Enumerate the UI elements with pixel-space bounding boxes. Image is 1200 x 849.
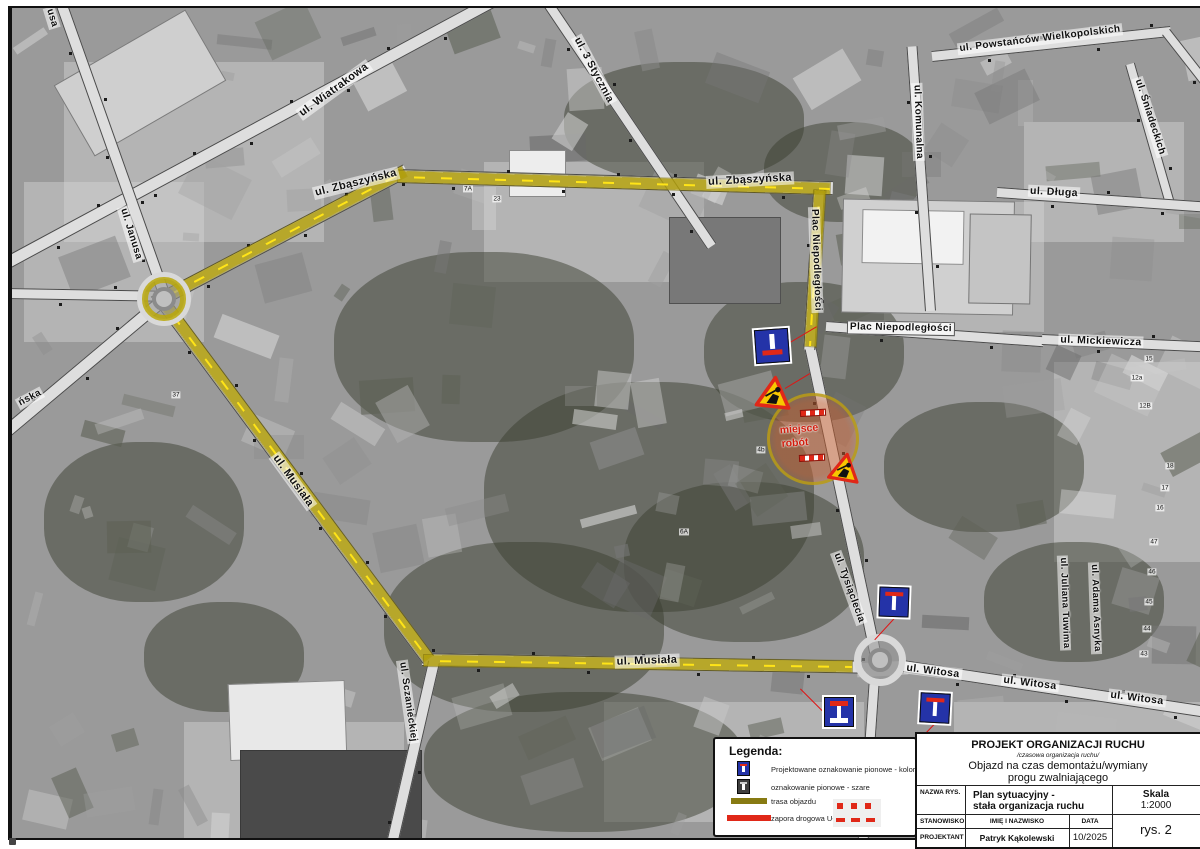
road-point — [690, 230, 693, 233]
road-barrier — [800, 409, 826, 417]
road-point — [193, 152, 196, 155]
road-point — [507, 170, 510, 173]
street-label: ul. Musiała — [269, 451, 317, 511]
building-block — [83, 786, 135, 818]
road-point — [697, 673, 700, 676]
road-point — [418, 771, 421, 774]
road-point — [444, 37, 447, 40]
legend-title: Legenda: — [729, 744, 782, 758]
data-label: DATA — [1081, 818, 1098, 825]
building-block — [862, 209, 965, 265]
legend-item-label: trasa objazdu — [771, 797, 816, 806]
road-point — [1137, 119, 1140, 122]
parcel-number: 12B — [1138, 402, 1152, 409]
road-point — [1174, 716, 1177, 719]
road-point — [915, 211, 918, 214]
street-label: Plac Niepodległości — [847, 320, 955, 335]
road-point — [402, 183, 405, 186]
roadworks-sign — [754, 372, 794, 412]
parcel-number: 43 — [1139, 650, 1148, 657]
nazwa-rys-label: NAZWA RYS. — [920, 789, 960, 796]
road-point — [235, 384, 238, 387]
building-block — [334, 284, 350, 302]
road-point — [674, 174, 677, 177]
road-point — [384, 615, 387, 618]
road-point — [672, 193, 675, 196]
project-subtitle: /czasowa organizacja ruchu/ — [1017, 752, 1099, 759]
road-point — [114, 286, 117, 289]
road-point — [250, 142, 253, 145]
sign-gray-icon — [737, 779, 750, 794]
road-point — [141, 201, 144, 204]
road-point — [116, 327, 119, 330]
road-point — [988, 59, 991, 62]
parcel-number: 16 — [1155, 504, 1164, 511]
building-block — [517, 41, 535, 54]
road-point — [613, 83, 616, 86]
imie-nazwisko-label: IMIĘ I NAZWISKO — [990, 818, 1044, 825]
road-point — [106, 156, 109, 159]
road-point — [477, 669, 480, 672]
road-point — [319, 527, 322, 530]
road-point — [1152, 335, 1155, 338]
road-point — [1097, 48, 1100, 51]
road-point — [253, 439, 256, 442]
road-point — [1161, 212, 1164, 215]
project-title: PROJEKT ORGANIZACJI RUCHU — [971, 739, 1145, 751]
parcel-number: 47 — [1149, 538, 1158, 545]
legend-item-label: Projektowane oznakowanie pionowe - kolor — [771, 765, 915, 774]
corner-mark — [9, 838, 16, 845]
building-block — [922, 615, 970, 631]
road-point — [1051, 205, 1054, 208]
street-label: ul. Musiała — [614, 654, 679, 669]
road-point — [907, 101, 910, 104]
building-block — [107, 521, 151, 554]
road-point — [782, 196, 785, 199]
aerial-map: miejscerobótul. Zbąszyńskaul. Zbąszyńska… — [8, 6, 1200, 840]
route-swatch — [731, 798, 767, 804]
no-through-road-sign — [754, 328, 790, 364]
parcel-number: 37 — [171, 391, 180, 398]
parcel-number: 18 — [1165, 462, 1174, 469]
drawing-number: rys. 2 — [1140, 822, 1172, 837]
roadworks-sign — [826, 448, 863, 485]
parcel-number: 44 — [1142, 625, 1151, 632]
road-point — [57, 246, 60, 249]
road-point — [1150, 24, 1153, 27]
road-point — [69, 52, 72, 55]
road-point — [752, 656, 755, 659]
date-value: 10/2025 — [1073, 832, 1107, 843]
building-block — [373, 524, 425, 573]
drawing-name-line-2: stała organizacja ruchu — [973, 801, 1084, 812]
parcel-number: 6A — [679, 528, 689, 535]
road-point — [387, 47, 390, 50]
building-block — [442, 375, 461, 404]
parcel-number: 12a — [1131, 374, 1144, 381]
road-point — [388, 821, 391, 824]
stanowisko-label: STANOWISKO — [920, 818, 964, 825]
building-block — [1109, 236, 1154, 281]
road-point — [1193, 81, 1196, 84]
building-block — [27, 591, 44, 626]
building-block — [49, 712, 85, 746]
vegetation-patch — [884, 402, 1084, 532]
road-point — [629, 139, 632, 142]
road-point — [188, 351, 191, 354]
road-point — [452, 187, 455, 190]
road-point — [1169, 167, 1172, 170]
scale-label: Skala — [1143, 789, 1169, 800]
road-point — [562, 190, 565, 193]
road-point — [290, 100, 293, 103]
road-point — [104, 98, 107, 101]
no-through-road-sign — [824, 697, 854, 727]
projektant-label: PROJEKTANT — [920, 834, 964, 841]
street-label: ul. Juliana Tuwima — [1057, 555, 1071, 650]
building-block — [149, 789, 164, 826]
parcel-number: 46 — [1147, 568, 1156, 575]
building-block — [968, 213, 1032, 304]
road-point — [86, 377, 89, 380]
parcel-number: 15 — [1144, 355, 1153, 362]
road-point — [617, 173, 620, 176]
building-block — [340, 27, 376, 46]
road-point — [865, 559, 868, 562]
building-block — [819, 335, 850, 380]
building-block — [792, 49, 860, 110]
road-point — [836, 509, 839, 512]
building-block — [211, 812, 231, 840]
barrier-u20a-icon — [833, 799, 881, 827]
road-point — [366, 561, 369, 564]
building-block — [655, 492, 679, 515]
building-block — [957, 696, 1007, 735]
work-zone-label: robót — [781, 436, 809, 450]
building-block — [669, 217, 781, 304]
road-point — [587, 671, 590, 674]
road-point — [929, 155, 932, 158]
building-block — [274, 358, 293, 403]
building-block — [183, 232, 199, 241]
subject-line-1: Objazd na czas demontażu/wymiany — [968, 760, 1147, 772]
road-barrier — [799, 454, 825, 462]
building-block — [866, 48, 884, 66]
road-point — [807, 675, 810, 678]
building-block — [228, 680, 348, 761]
building-block — [322, 437, 371, 485]
parcel-number: 4b — [756, 446, 765, 453]
roundabout-detour-ring — [142, 277, 185, 320]
building-block — [213, 314, 279, 360]
road-point — [97, 204, 100, 207]
parcel-number: 7A — [463, 185, 473, 192]
parcel-number: 17 — [1160, 484, 1169, 491]
road-point — [1107, 191, 1110, 194]
road-point — [432, 649, 435, 652]
road-point — [300, 472, 303, 475]
road-point — [207, 285, 210, 288]
building-block — [541, 38, 557, 68]
building-block — [13, 27, 48, 54]
building-block — [594, 371, 631, 410]
building-block — [1017, 500, 1048, 528]
legend-box: Legenda: Projektowane oznakowanie pionow… — [713, 737, 917, 837]
building-block — [472, 187, 496, 231]
parcel-number: 45 — [1144, 598, 1153, 605]
road-point — [532, 652, 535, 655]
roundabout-island — [868, 648, 891, 671]
road-point — [1097, 350, 1100, 353]
road-point — [347, 89, 350, 92]
building-block — [565, 386, 596, 405]
drawing-name-line-1: Plan sytuacyjny - — [973, 790, 1055, 801]
road-point — [1065, 700, 1068, 703]
street-label: ul. Witosa — [904, 662, 963, 681]
sign-blue-icon — [737, 761, 750, 776]
road-point — [304, 234, 307, 237]
parcel-number: 23 — [492, 195, 501, 202]
building-block — [255, 253, 312, 305]
barrier-swatch — [727, 815, 771, 821]
title-block: PROJEKT ORGANIZACJI RUCHU /czasowa organ… — [915, 732, 1200, 849]
designer-name: Patryk Kąkolewski — [980, 833, 1055, 843]
building-block — [255, 6, 322, 61]
road-point — [59, 303, 62, 306]
legend-item-label: oznakowanie pionowe - szare — [771, 783, 870, 792]
no-through-road-sign — [878, 586, 909, 617]
road-point — [956, 683, 959, 686]
road-point — [880, 339, 883, 342]
street-label: ul. Komunalna — [911, 83, 925, 161]
road-point — [567, 48, 570, 51]
no-through-road-sign — [919, 692, 951, 724]
road-point — [990, 346, 993, 349]
building-block — [449, 283, 497, 328]
subject-line-2: progu zwalniającego — [1008, 772, 1108, 784]
road-point — [936, 265, 939, 268]
scale-value: 1:2000 — [1141, 800, 1172, 811]
street-label: ul. Adama Asnyka — [1088, 562, 1102, 654]
road-point — [154, 194, 157, 197]
building-block — [111, 728, 139, 752]
building-block — [986, 651, 1024, 673]
